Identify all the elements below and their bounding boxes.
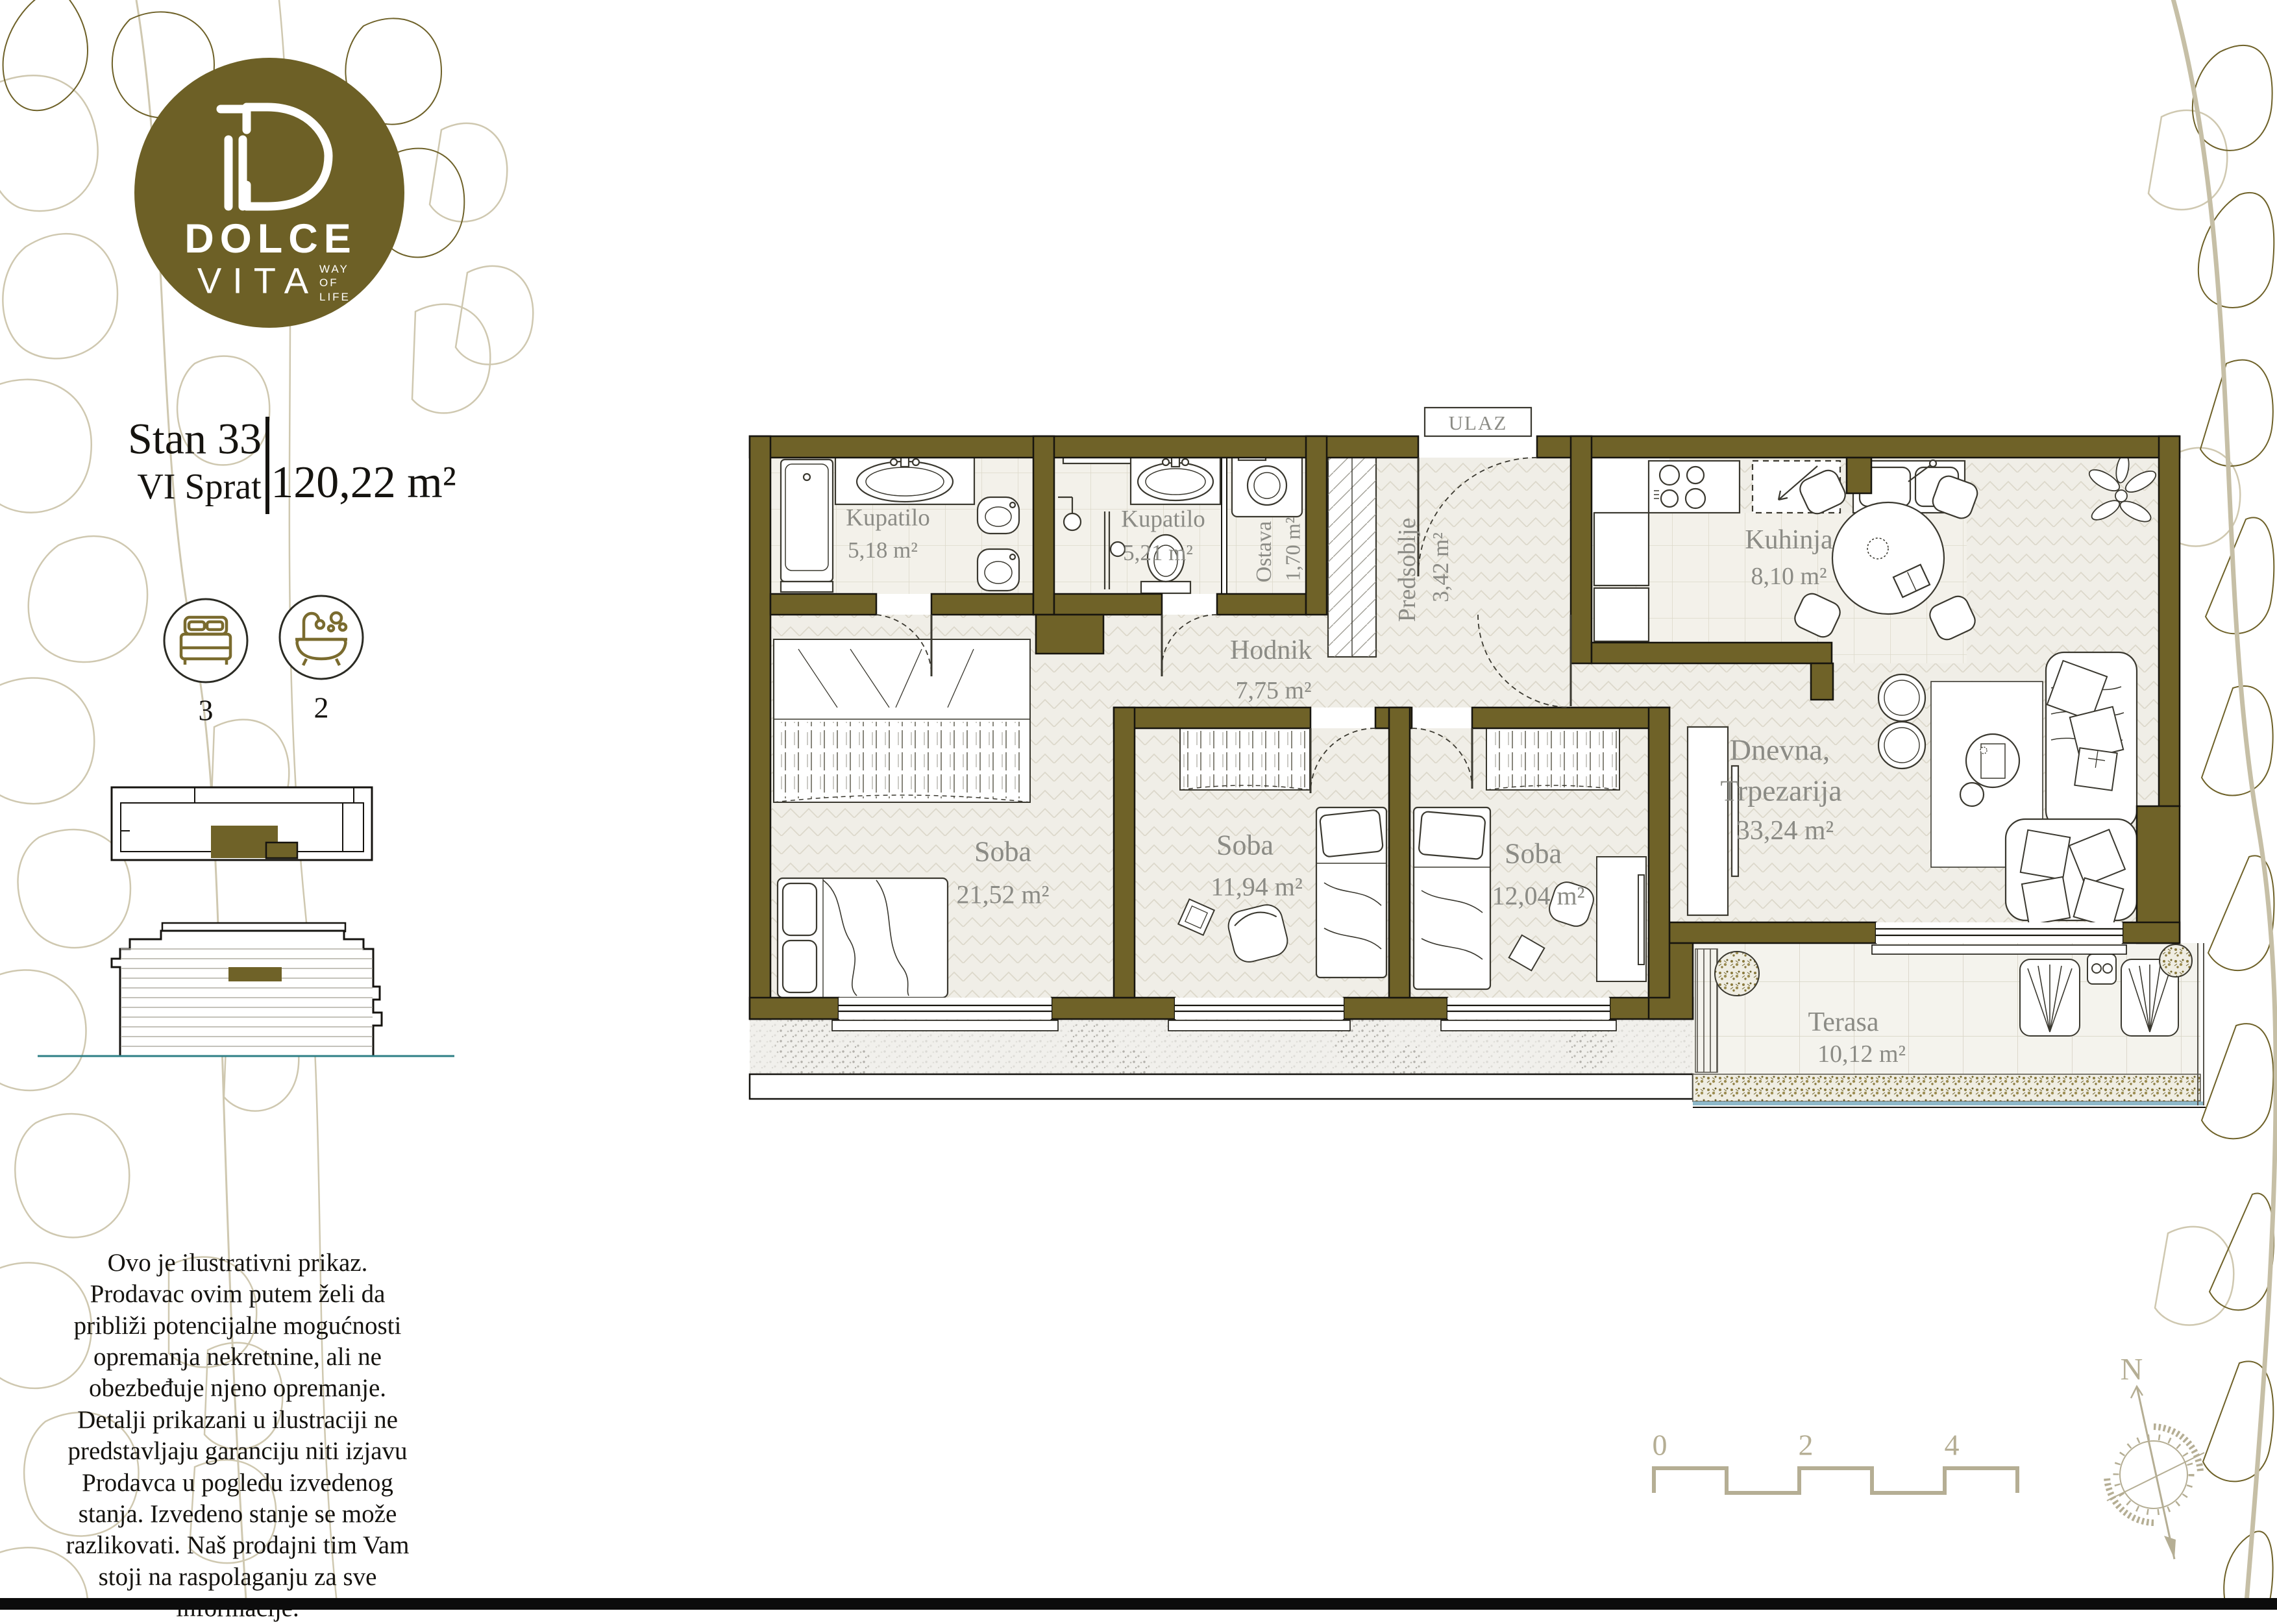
room-area-terasa: 10,12 m²	[1817, 1040, 1906, 1068]
sink	[835, 456, 974, 504]
bed-soba2	[1316, 807, 1386, 978]
unit-floor: VI Sprat	[137, 466, 261, 508]
room-label-hodnik: Hodnik	[1230, 635, 1312, 666]
tagline-way: WAY	[319, 262, 351, 276]
lounge-chair	[2020, 959, 2080, 1036]
compass-north-label: N	[2121, 1352, 2143, 1388]
room-label-soba1: Soba	[974, 835, 1031, 868]
scale-tick-2: 2	[1799, 1428, 1814, 1462]
window-living-terrace	[1872, 922, 2126, 954]
floor-plan	[750, 408, 2206, 1107]
mini-site-plan	[112, 787, 372, 860]
brand-name-vita: VITA	[197, 260, 319, 302]
room-label-predsoblje: Predsoblje	[1393, 518, 1422, 622]
brochure-page: { "brand": { "monogram": "D", "name_line…	[0, 0, 2277, 1610]
bathrooms-count: 2	[314, 691, 329, 725]
room-area-kupatilo1: 5,18 m²	[848, 537, 918, 563]
room-label-soba2: Soba	[1216, 829, 1274, 862]
compass-rose	[2107, 1386, 2204, 1559]
entry-closet	[1328, 448, 1376, 657]
terrace-plant-pot	[1715, 952, 1759, 996]
window-soba2	[1168, 998, 1350, 1031]
mini-elevation-floor-highlight	[228, 967, 282, 981]
scale-tick-0: 0	[1653, 1428, 1668, 1462]
bedrooms-icon	[164, 599, 247, 682]
room-area-soba2: 11,94 m²	[1211, 872, 1303, 902]
bath2-divider	[1222, 458, 1227, 594]
footer-bar	[0, 1598, 2277, 1610]
disclaimer-text: Ovo je ilustrativni prikaz. Prodavac ovi…	[60, 1248, 415, 1624]
window-soba3	[1441, 998, 1616, 1031]
unit-area: 120,22 m²	[271, 457, 456, 509]
room-area-predsoblje: 3,42 m²	[1428, 532, 1454, 602]
desk-soba3	[1597, 857, 1646, 981]
room-label-kuhinja: Kuhinja	[1745, 524, 1832, 556]
terrace-planter-water-edge	[1693, 1101, 2203, 1105]
scale-bar	[1654, 1468, 2017, 1493]
toilet	[978, 549, 1019, 591]
room-label-terasa: Terasa	[1808, 1007, 1879, 1038]
bed-master	[778, 878, 948, 998]
wardrobe-soba3	[1486, 728, 1619, 790]
tagline-life: LIFE	[319, 290, 351, 304]
tagline-of: OF	[319, 276, 351, 289]
room-label-ostava: Ostava	[1252, 521, 1277, 582]
bathrooms-icon	[280, 596, 363, 679]
bidet	[978, 497, 1019, 534]
scale-tick-4: 4	[1945, 1428, 1960, 1462]
room-area-ostava: 1,70 m²	[1281, 517, 1305, 581]
room-area-soba3: 12,04 m²	[1492, 881, 1584, 911]
bedrooms-count: 3	[199, 693, 214, 728]
room-area-kuhinja: 8,10 m²	[1751, 562, 1827, 591]
entrance-label: ULAZ	[1449, 412, 1508, 435]
mini-building-elevation	[38, 923, 454, 1056]
room-area-dnevna: 33,24 m²	[1736, 815, 1834, 846]
terrace-side-table	[2087, 954, 2116, 984]
stove	[1649, 461, 1740, 513]
room-label-trpezarija: Trpezarija	[1720, 774, 1841, 808]
room-area-kupatilo2: 5,21 m²	[1123, 540, 1193, 566]
room-label-kupatilo2: Kupatilo	[1121, 506, 1205, 534]
room-label-dnevna: Dnevna,	[1730, 733, 1830, 767]
sink	[1131, 456, 1220, 504]
room-area-hodnik: 7,75 m²	[1236, 676, 1312, 705]
wardrobe-master	[774, 639, 1030, 802]
dining-table	[1832, 502, 1944, 614]
brand-name-dolce: DOLCE	[184, 215, 357, 262]
terrace-planter	[1693, 1074, 2200, 1101]
window-soba1	[832, 998, 1058, 1031]
room-label-soba3: Soba	[1505, 837, 1562, 870]
room-label-kupatilo1: Kupatilo	[846, 504, 929, 532]
wardrobe-soba2	[1180, 728, 1310, 790]
terrace-plant-pot	[2160, 944, 2192, 977]
room-area-soba1: 21,52 m²	[956, 880, 1049, 910]
bed-soba3	[1414, 807, 1490, 989]
brand-tagline: WAY OF LIFE	[319, 262, 351, 304]
unit-title: Stan 33	[128, 413, 262, 465]
